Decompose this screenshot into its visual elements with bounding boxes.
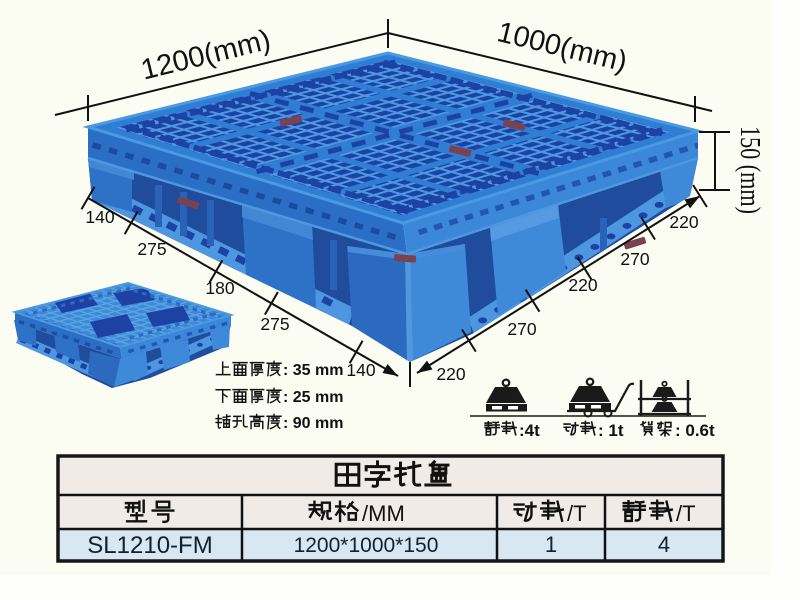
svg-text:180: 180 (205, 278, 234, 298)
svg-text:220: 220 (568, 275, 597, 295)
svg-text:/T: /T (567, 501, 587, 526)
svg-text:: 90 mm: : 90 mm (283, 415, 343, 432)
svg-text:140: 140 (85, 207, 114, 227)
svg-text:: 25 mm: : 25 mm (283, 389, 343, 406)
svg-text:140: 140 (346, 360, 375, 380)
svg-text:SL1210-FM: SL1210-FM (87, 532, 212, 559)
svg-text:: 35 mm: : 35 mm (283, 362, 343, 379)
svg-text:1200*1000*150: 1200*1000*150 (294, 534, 439, 557)
svg-text:150 (mm): 150 (mm) (734, 126, 765, 214)
svg-text:275: 275 (260, 314, 289, 334)
svg-text:4: 4 (658, 532, 670, 557)
svg-text:270: 270 (507, 319, 536, 339)
svg-text::4t: :4t (519, 421, 540, 440)
svg-text:1: 1 (545, 532, 557, 557)
svg-text:275: 275 (137, 239, 166, 259)
svg-text:: 1t: : 1t (598, 421, 624, 440)
svg-text:220: 220 (669, 212, 698, 232)
svg-text:220: 220 (436, 364, 465, 384)
svg-text:: 0.6t: : 0.6t (675, 421, 715, 440)
svg-text:/T: /T (676, 501, 696, 526)
svg-text:/MM: /MM (362, 501, 405, 526)
svg-text:270: 270 (620, 249, 649, 269)
